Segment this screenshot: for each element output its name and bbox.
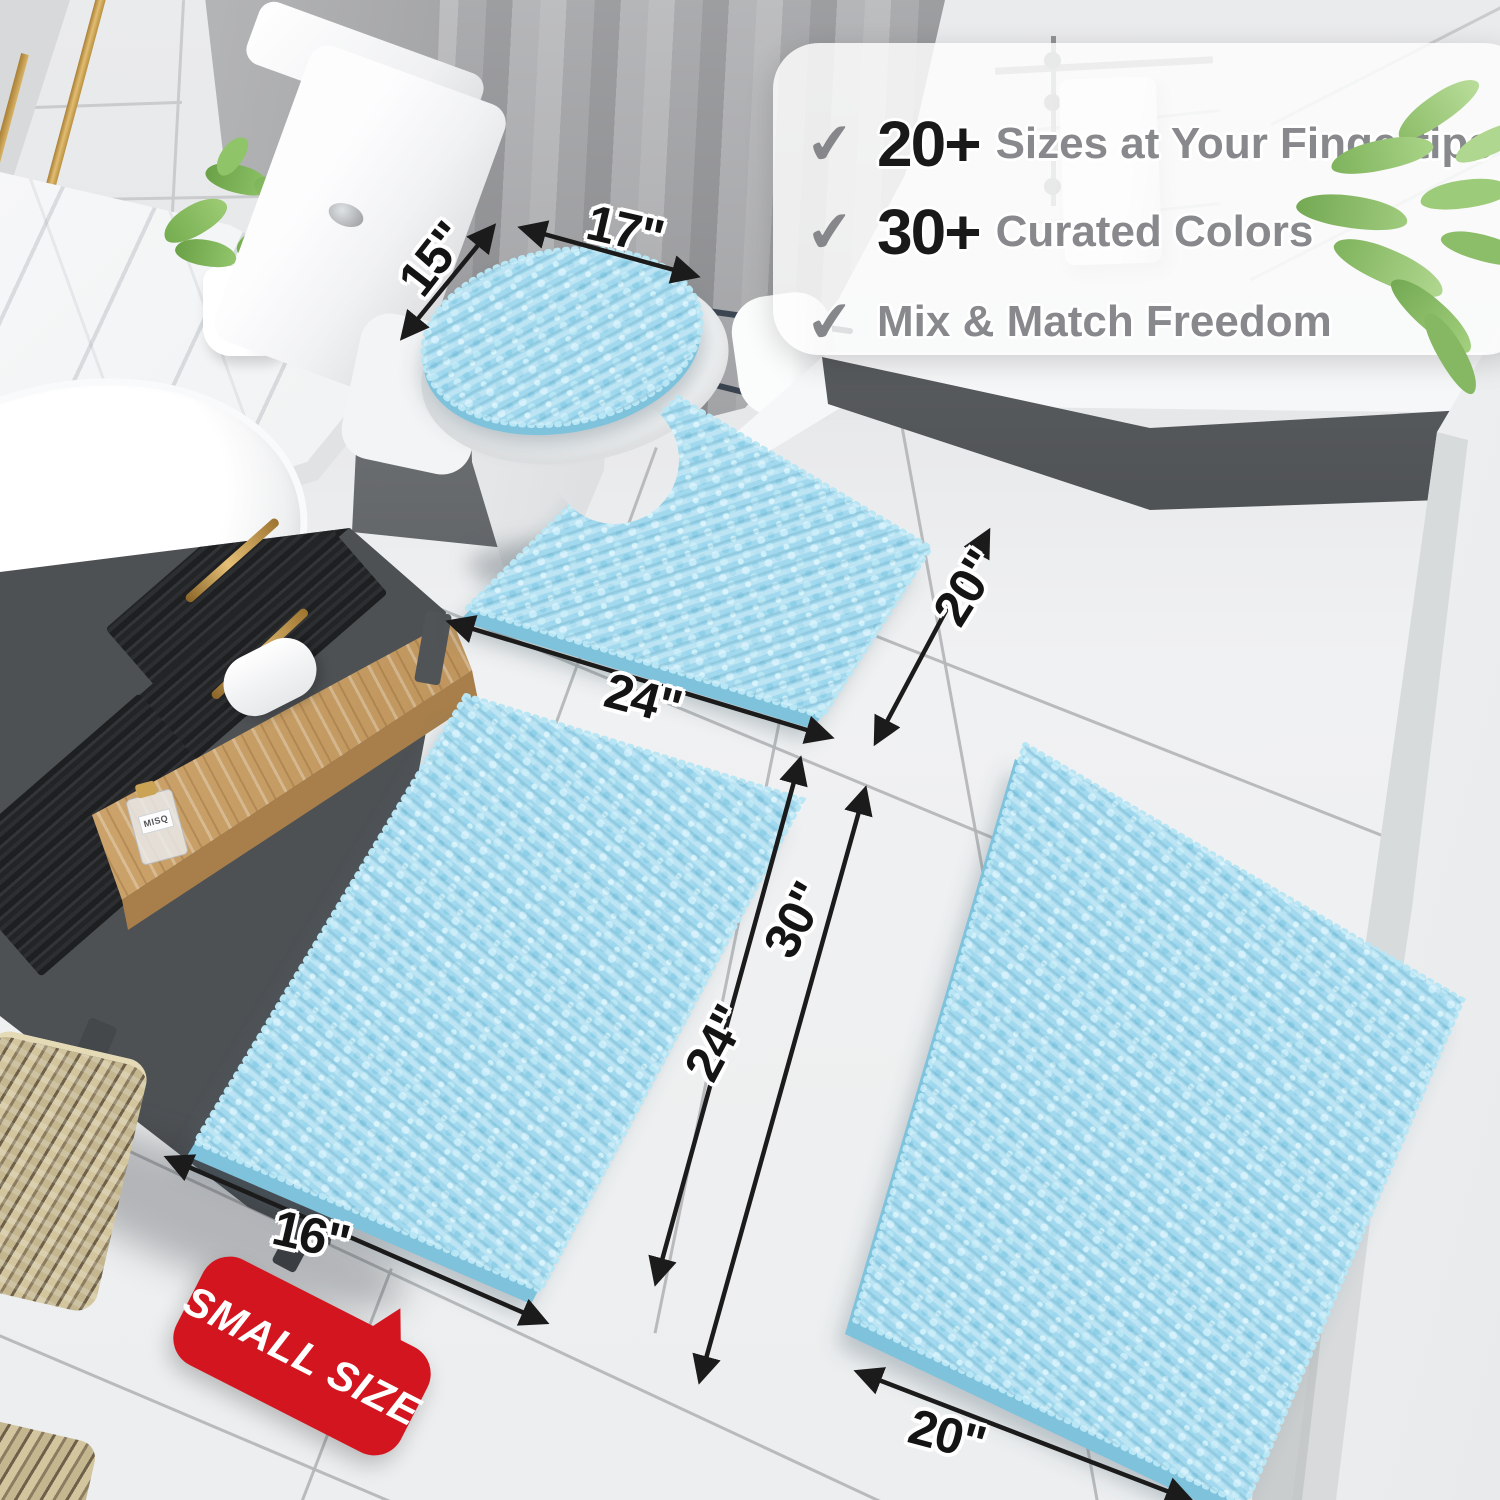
feature-label: Curated Colors xyxy=(996,207,1314,257)
feature-number: 30+ xyxy=(877,195,980,269)
check-icon: ✔ xyxy=(798,109,862,180)
check-icon: ✔ xyxy=(798,287,862,358)
feature-number: 20+ xyxy=(877,107,980,181)
feature-label: Mix & Match Freedom xyxy=(877,297,1332,347)
feature-callout: ✔ 20+ Sizes at Your Fingertips ✔ 30+ Cur… xyxy=(773,43,1500,355)
bath-rug-product-image: MISQ xyxy=(0,0,1500,1500)
check-icon: ✔ xyxy=(798,197,862,268)
